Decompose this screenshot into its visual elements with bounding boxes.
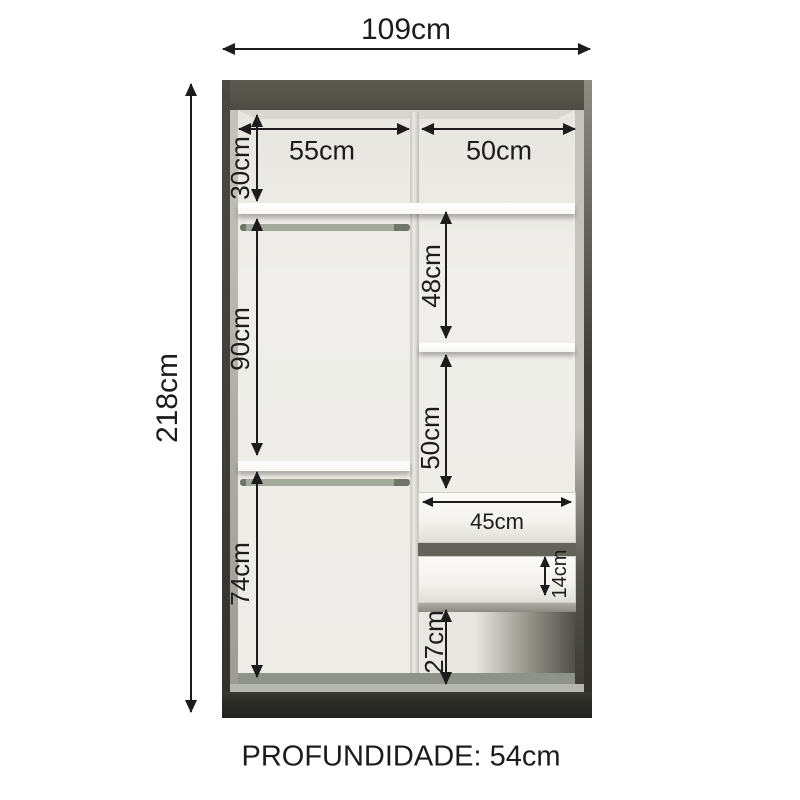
dim-left-column-width-label: 55cm [289,138,355,165]
interior-floor-front-edge [230,684,584,692]
dim-drawer-height-label: 14cm [550,550,570,599]
right-inner-wall [575,110,584,690]
upper-full-width-shelf [238,203,575,214]
dim-drawer-height-arrow [544,557,546,595]
top-panel-underside [238,110,575,119]
dim-overall-width-label: 109cm [361,15,451,45]
dim-overall-height-label: 218cm [153,353,183,443]
dim-right-column-width-label: 50cm [466,138,532,165]
dim-left-hanging-height-arrow [256,219,258,455]
dim-right-bottom-height-arrow [445,610,447,684]
dim-top-section-height-label: 30cm [227,136,253,200]
plinth-base-panel [222,692,592,718]
dim-right-upper-height-arrow [445,212,447,338]
dim-drawer-width-arrow [423,501,571,503]
dim-overall-height-arrow [190,84,192,712]
dim-right-middle-height-label: 50cm [417,406,443,470]
dim-left-column-width-arrow [239,128,409,130]
lower-hanging-rod [240,479,410,486]
dim-drawer-width-label: 45cm [470,511,524,533]
dim-top-section-height-arrow [256,115,258,201]
left-column-lower-shelf [238,461,410,471]
wardrobe-top-panel [222,80,592,110]
dim-right-column-width-arrow [422,128,575,130]
right-column-middle-shelf [419,343,575,352]
dim-left-hanging-height-label: 90cm [227,307,253,371]
wardrobe-right-side-panel [584,80,592,718]
upper-hanging-rod [240,224,410,231]
dim-left-bottom-height-arrow [256,472,258,677]
wardrobe-dimension-diagram: 109cm 218cm 55cm 50cm 30cm 90cm 74cm 48c… [0,0,800,800]
dim-overall-width-arrow [223,48,590,50]
dim-right-middle-height-arrow [445,355,447,488]
depth-note: PROFUNDIDADE: 54cm [241,743,560,772]
dim-right-upper-height-label: 48cm [418,244,444,308]
interior-floor-panel [238,673,575,684]
dim-left-bottom-height-label: 74cm [227,542,253,606]
